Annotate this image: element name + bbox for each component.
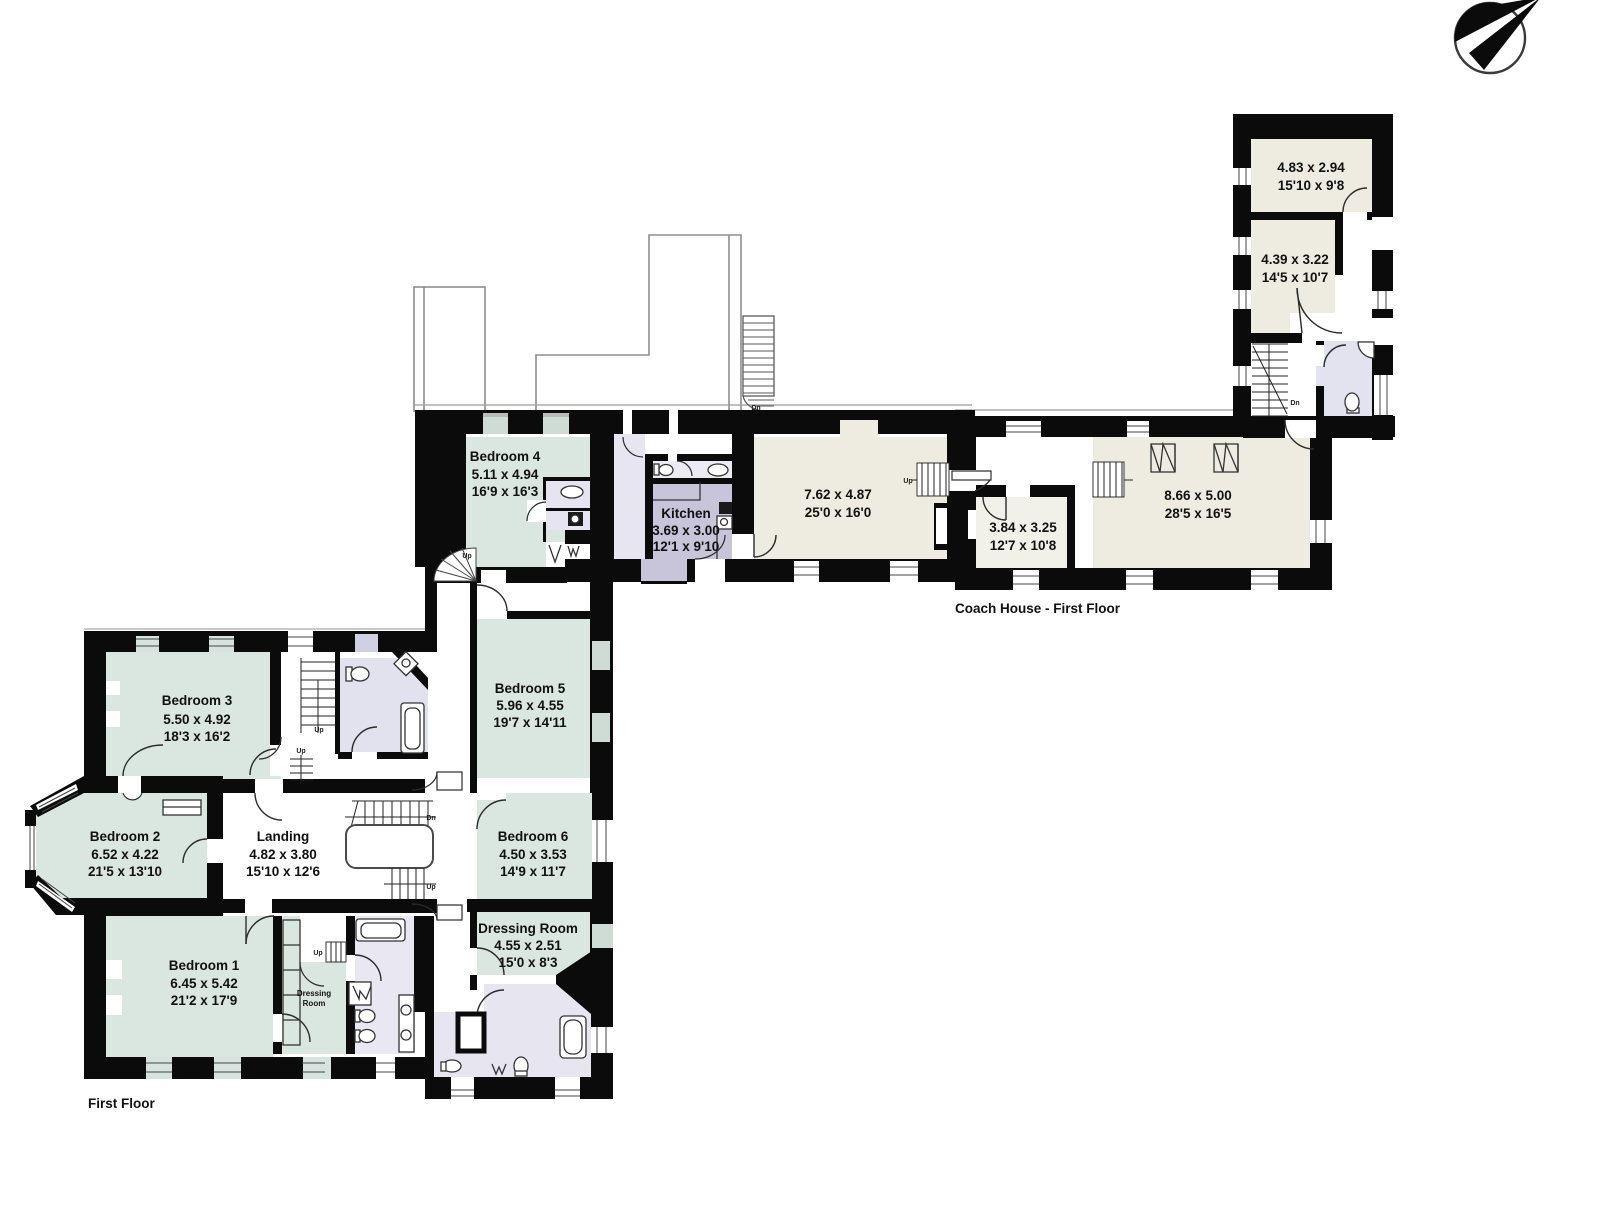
- svg-text:15'0 x 8'3: 15'0 x 8'3: [499, 955, 558, 970]
- svg-text:4.50 x 3.53: 4.50 x 3.53: [499, 847, 567, 862]
- svg-text:3.69 x 3.00: 3.69 x 3.00: [652, 523, 720, 538]
- svg-text:5.50 x 4.92: 5.50 x 4.92: [163, 712, 231, 727]
- svg-text:Up: Up: [296, 748, 305, 755]
- svg-text:Coach House - First Floor: Coach House - First Floor: [955, 601, 1121, 616]
- svg-text:3.84 x 3.25: 3.84 x 3.25: [989, 520, 1057, 535]
- svg-text:Dn: Dn: [426, 815, 435, 822]
- svg-text:Up: Up: [903, 478, 912, 485]
- svg-text:6.52 x 4.22: 6.52 x 4.22: [91, 847, 159, 862]
- svg-text:Up: Up: [313, 950, 322, 957]
- svg-text:21'2 x 17'9: 21'2 x 17'9: [171, 993, 237, 1008]
- svg-text:12'7 x 10'8: 12'7 x 10'8: [990, 538, 1057, 553]
- svg-text:6.45 x 5.42: 6.45 x 5.42: [170, 976, 238, 991]
- svg-text:Dn: Dn: [1290, 400, 1299, 407]
- svg-text:4.55 x 2.51: 4.55 x 2.51: [494, 938, 562, 953]
- svg-text:7.62 x 4.87: 7.62 x 4.87: [804, 487, 872, 502]
- svg-text:Dressing: Dressing: [297, 989, 331, 998]
- svg-text:21'5 x 13'10: 21'5 x 13'10: [88, 864, 162, 879]
- svg-text:15'10 x 12'6: 15'10 x 12'6: [246, 864, 320, 879]
- svg-text:8.66 x 5.00: 8.66 x 5.00: [1164, 488, 1232, 503]
- svg-text:Up: Up: [314, 727, 323, 734]
- svg-text:Bedroom 6: Bedroom 6: [498, 829, 569, 844]
- svg-text:16'9 x 16'3: 16'9 x 16'3: [472, 484, 539, 499]
- svg-text:15'10 x 9'8: 15'10 x 9'8: [1278, 178, 1345, 193]
- svg-text:Bedroom 1: Bedroom 1: [169, 958, 240, 973]
- svg-text:18'3 x 16'2: 18'3 x 16'2: [164, 729, 230, 744]
- svg-text:First Floor: First Floor: [88, 1096, 155, 1111]
- svg-text:5.11 x 4.94: 5.11 x 4.94: [472, 467, 539, 482]
- svg-text:Kitchen: Kitchen: [661, 506, 711, 521]
- svg-text:Bedroom 4: Bedroom 4: [470, 449, 541, 464]
- svg-text:Up: Up: [462, 553, 471, 560]
- svg-text:Dressing Room: Dressing Room: [478, 921, 578, 936]
- svg-text:Bedroom 3: Bedroom 3: [162, 693, 233, 708]
- svg-text:Bedroom 2: Bedroom 2: [90, 829, 161, 844]
- svg-text:14'5 x 10'7: 14'5 x 10'7: [1262, 270, 1328, 285]
- svg-text:5.96 x 4.55: 5.96 x 4.55: [496, 698, 564, 713]
- svg-text:4.83 x 2.94: 4.83 x 2.94: [1277, 160, 1345, 175]
- svg-text:Up: Up: [426, 884, 435, 891]
- svg-text:Landing: Landing: [257, 829, 310, 844]
- svg-text:Bedroom 5: Bedroom 5: [495, 681, 566, 696]
- svg-text:Room: Room: [303, 999, 326, 1008]
- svg-text:Dn: Dn: [751, 405, 760, 412]
- svg-text:4.82 x 3.80: 4.82 x 3.80: [249, 847, 317, 862]
- svg-text:14'9 x 11'7: 14'9 x 11'7: [500, 864, 566, 879]
- svg-text:4.39 x 3.22: 4.39 x 3.22: [1261, 252, 1329, 267]
- svg-text:28'5 x 16'5: 28'5 x 16'5: [1165, 506, 1232, 521]
- svg-text:12'1 x 9'10: 12'1 x 9'10: [653, 539, 719, 554]
- svg-text:19'7 x 14'11: 19'7 x 14'11: [493, 715, 567, 730]
- svg-text:25'0 x 16'0: 25'0 x 16'0: [805, 505, 871, 520]
